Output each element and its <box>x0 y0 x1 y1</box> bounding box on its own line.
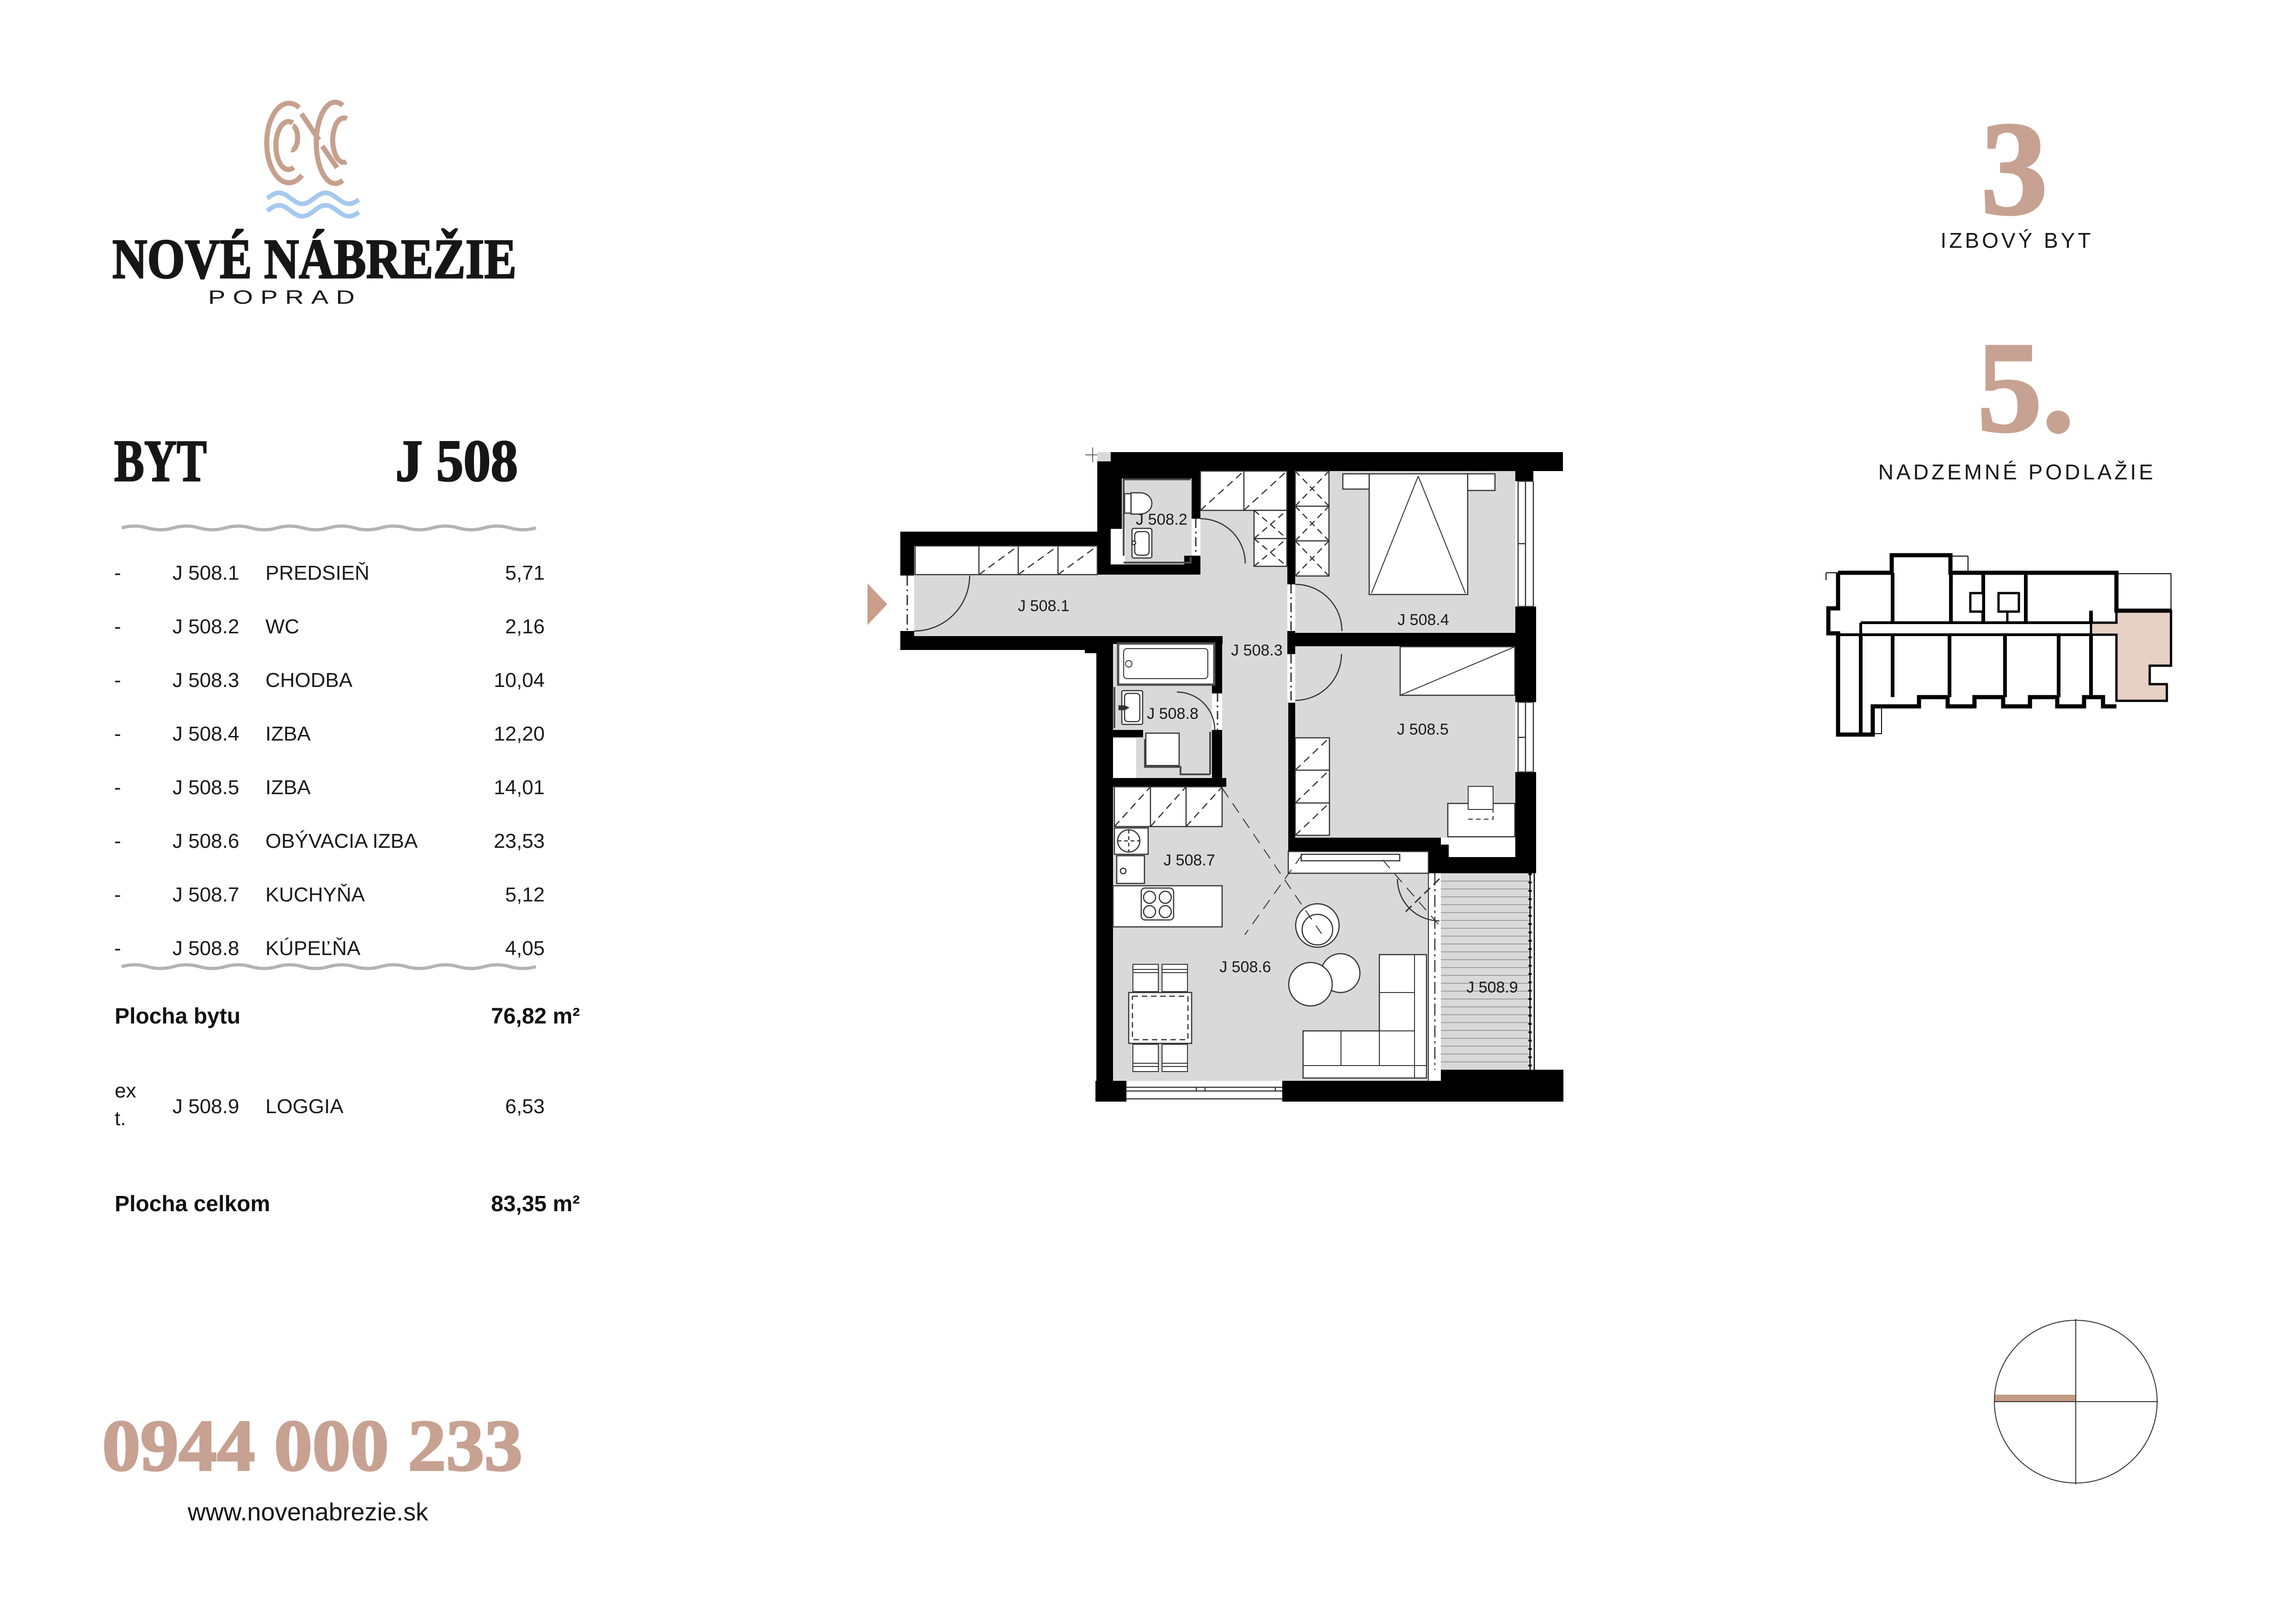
svg-text:-: - <box>114 669 121 692</box>
svg-text:J 508.9: J 508.9 <box>1466 979 1518 996</box>
svg-text:NOVÉ NÁBREŽIE: NOVÉ NÁBREŽIE <box>112 228 517 290</box>
svg-text:10,04: 10,04 <box>494 669 545 692</box>
svg-text:-: - <box>114 776 121 799</box>
svg-text:J 508.6: J 508.6 <box>1219 958 1271 976</box>
svg-text:6,53: 6,53 <box>505 1095 545 1118</box>
svg-text:-: - <box>114 937 121 960</box>
svg-text:IZBA: IZBA <box>265 776 311 799</box>
svg-text:J 508.7: J 508.7 <box>172 883 239 906</box>
svg-text:12,20: 12,20 <box>494 723 545 745</box>
svg-text:KUCHYŇA: KUCHYŇA <box>265 883 365 906</box>
svg-text:76,82 m²: 76,82 m² <box>491 1004 580 1029</box>
svg-text:J 508.8: J 508.8 <box>172 937 239 960</box>
svg-text:J 508: J 508 <box>395 428 518 494</box>
svg-text:J 508.4: J 508.4 <box>172 723 239 745</box>
svg-text:J 508.1: J 508.1 <box>1018 597 1070 615</box>
svg-text:14,01: 14,01 <box>494 776 545 799</box>
svg-text:J 508.2: J 508.2 <box>172 615 239 638</box>
svg-text:KÚPEĽŇA: KÚPEĽŇA <box>265 937 361 960</box>
svg-text:5,71: 5,71 <box>505 562 545 584</box>
svg-text:www.novenabrezie.sk: www.novenabrezie.sk <box>187 1498 429 1526</box>
svg-text:J 508.2: J 508.2 <box>1136 511 1187 528</box>
svg-text:0944 000 233: 0944 000 233 <box>102 1405 523 1486</box>
svg-text:J 508.1: J 508.1 <box>172 562 239 584</box>
svg-text:POPRAD: POPRAD <box>208 286 362 308</box>
svg-text:-: - <box>114 615 121 638</box>
svg-text:-: - <box>114 562 121 584</box>
svg-text:83,35 m²: 83,35 m² <box>491 1192 580 1216</box>
svg-text:4,05: 4,05 <box>505 937 545 960</box>
svg-text:23,53: 23,53 <box>494 830 545 852</box>
svg-text:-: - <box>114 883 121 906</box>
svg-text:J 508.7: J 508.7 <box>1163 852 1215 869</box>
svg-text:CHODBA: CHODBA <box>265 669 353 692</box>
svg-text:5.: 5. <box>1977 315 2074 459</box>
svg-text:J 508.3: J 508.3 <box>1231 642 1283 659</box>
svg-text:NADZEMNÉ PODLAŽIE: NADZEMNÉ PODLAŽIE <box>1878 460 2156 484</box>
svg-text:IZBA: IZBA <box>265 723 311 745</box>
svg-text:J 508.5: J 508.5 <box>1397 721 1449 738</box>
svg-text:Plocha bytu: Plocha bytu <box>115 1004 240 1029</box>
svg-text:PREDSIEŇ: PREDSIEŇ <box>265 562 369 584</box>
svg-text:3: 3 <box>1981 94 2048 243</box>
svg-text:J 508.4: J 508.4 <box>1397 611 1449 629</box>
svg-text:-: - <box>114 723 121 745</box>
svg-text:t.: t. <box>115 1107 126 1130</box>
svg-text:J 508.8: J 508.8 <box>1147 705 1199 723</box>
svg-text:BYT: BYT <box>114 428 207 494</box>
svg-text:J 508.6: J 508.6 <box>172 830 239 852</box>
svg-text:WC: WC <box>265 615 299 638</box>
svg-text:IZBOVÝ BYT: IZBOVÝ BYT <box>1941 228 2094 252</box>
svg-text:J 508.3: J 508.3 <box>172 669 239 692</box>
svg-text:Plocha celkom: Plocha celkom <box>115 1192 270 1216</box>
svg-text:5,12: 5,12 <box>505 883 545 906</box>
svg-text:LOGGIA: LOGGIA <box>265 1095 344 1118</box>
svg-text:OBÝVACIA IZBA: OBÝVACIA IZBA <box>265 830 418 852</box>
svg-text:2,16: 2,16 <box>505 615 545 638</box>
svg-text:-: - <box>114 830 121 852</box>
svg-text:ex: ex <box>115 1079 136 1102</box>
svg-text:J 508.5: J 508.5 <box>172 776 239 799</box>
svg-text:J 508.9: J 508.9 <box>172 1095 239 1118</box>
